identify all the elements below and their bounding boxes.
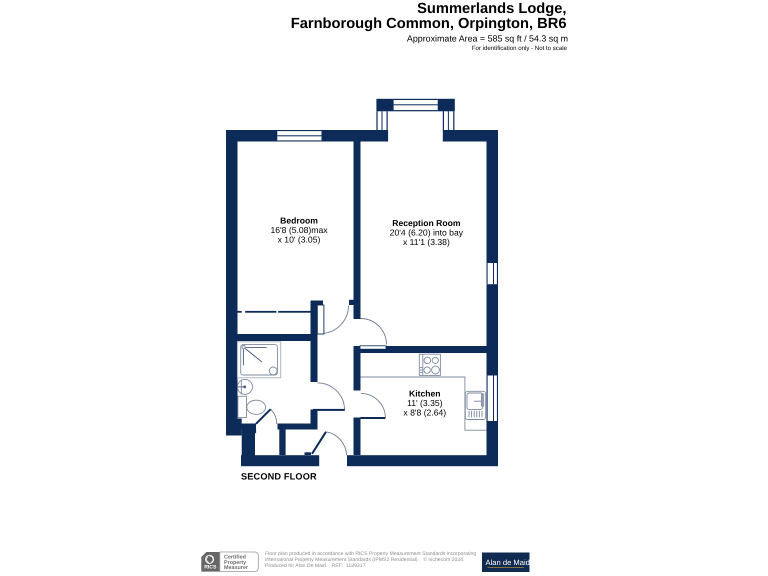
svg-text:x 11'1 (3.38): x 11'1 (3.38) (403, 237, 450, 247)
svg-text:Produced for Alan De Maid. R: Produced for Alan De Maid. REF: 1189317 (265, 563, 366, 569)
svg-text:Floor plan produced in accorda: Floor plan produced in accordance with R… (265, 551, 476, 557)
svg-text:Farnborough Common, Orpington,: Farnborough Common, Orpington, BR6 (291, 16, 567, 32)
svg-text:International Property Measure: International Property Measurement Stand… (265, 557, 464, 563)
svg-text:Reception Room: Reception Room (392, 218, 461, 228)
svg-text:Approximate Area = 585 sq ft /: Approximate Area = 585 sq ft / 54.3 sq m (407, 34, 568, 44)
svg-text:Kitchen: Kitchen (409, 388, 441, 398)
svg-text:20'4 (6.20) into bay: 20'4 (6.20) into bay (390, 228, 464, 238)
svg-text:Measurer: Measurer (224, 565, 249, 571)
svg-text:x 10' (3.05): x 10' (3.05) (278, 235, 321, 245)
svg-text:For identification only - Not: For identification only - Not to scale (472, 45, 568, 52)
svg-text:Alan de Maid: Alan de Maid (486, 558, 530, 567)
svg-text:RICS: RICS (204, 565, 217, 571)
svg-text:16'8 (5.08)max: 16'8 (5.08)max (270, 225, 328, 235)
svg-text:11' (3.35): 11' (3.35) (407, 398, 443, 408)
svg-text:Bedroom: Bedroom (280, 216, 318, 226)
svg-text:x 8'8 (2.64): x 8'8 (2.64) (403, 408, 446, 418)
svg-text:SECOND FLOOR: SECOND FLOOR (241, 471, 317, 481)
svg-text:Summerlands Lodge,: Summerlands Lodge, (417, 1, 566, 17)
